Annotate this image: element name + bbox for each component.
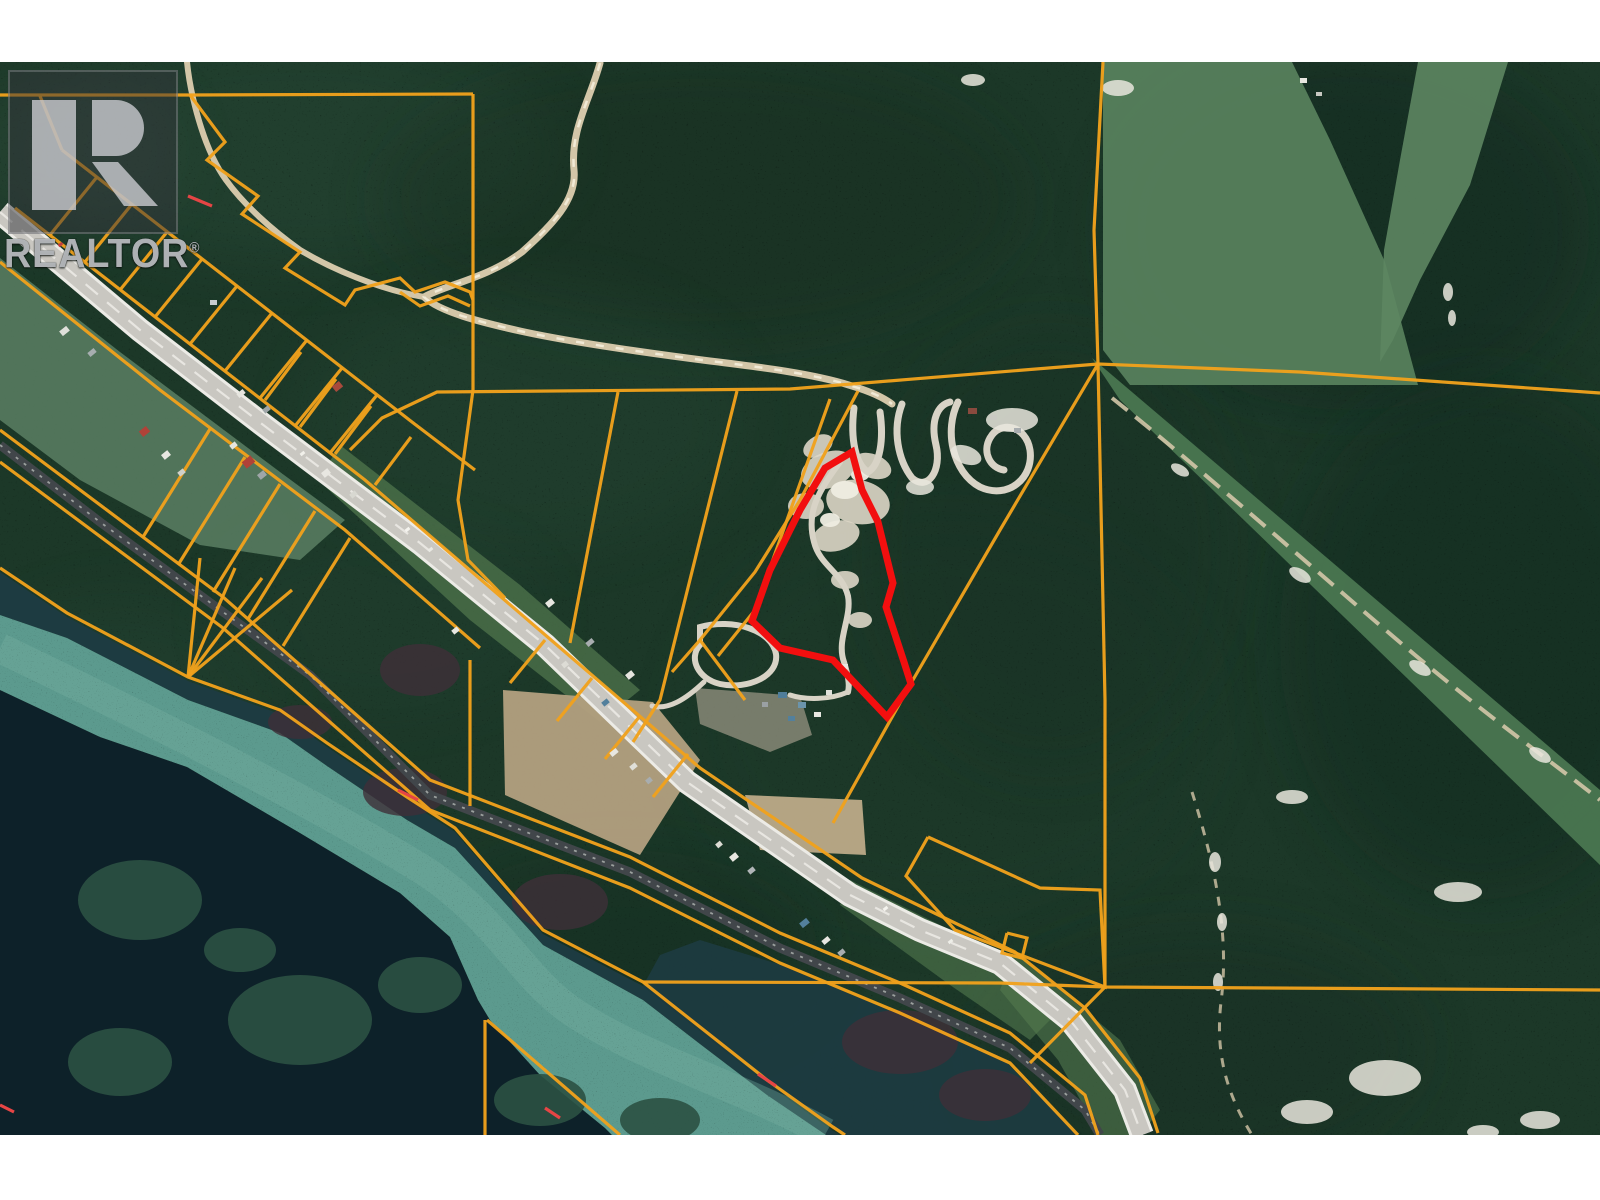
bare-ground-patch xyxy=(1520,1111,1560,1129)
building xyxy=(968,408,977,414)
marsh-island xyxy=(494,1074,586,1126)
bare-ground-patch xyxy=(1209,852,1221,872)
gravel-pit-bright xyxy=(831,481,859,499)
marsh-island xyxy=(68,1028,172,1096)
marsh-island xyxy=(228,975,372,1065)
bare-ground-patch xyxy=(1281,1100,1333,1124)
marsh-patch xyxy=(380,644,460,696)
building xyxy=(788,716,795,721)
letterbox-bottom xyxy=(0,1135,1600,1200)
gravel-pit-bright xyxy=(820,513,840,527)
marsh-patch xyxy=(512,874,608,930)
marsh-island xyxy=(378,957,462,1013)
bare-ground-patch xyxy=(961,74,985,86)
building xyxy=(1300,78,1307,83)
bare-ground-patch xyxy=(1217,913,1227,931)
building xyxy=(798,702,806,708)
building xyxy=(1316,92,1322,96)
bare-ground-patch xyxy=(1443,283,1453,301)
building xyxy=(762,702,768,707)
marsh-island xyxy=(78,860,202,940)
bare-ground-patch xyxy=(1448,310,1456,326)
building xyxy=(826,690,832,695)
satellite-map-canvas xyxy=(0,62,1600,1135)
marsh-island xyxy=(204,928,276,972)
bare-ground-patch xyxy=(1349,1060,1421,1096)
building xyxy=(1014,428,1021,433)
letterbox-top xyxy=(0,0,1600,62)
building xyxy=(210,300,217,305)
screenshot-stage: REALTOR® xyxy=(0,0,1600,1200)
parcel-boundary-line xyxy=(0,94,473,95)
bare-ground-patch xyxy=(1276,790,1308,804)
building xyxy=(990,415,997,420)
bare-ground-patch xyxy=(1102,80,1134,96)
satellite-map-viewport[interactable] xyxy=(0,62,1600,1135)
bare-ground-patch xyxy=(1434,882,1482,902)
building xyxy=(814,712,821,717)
building xyxy=(778,692,787,698)
marsh-patch xyxy=(939,1069,1031,1121)
gravel-pit xyxy=(848,612,872,628)
bare-ground-patch xyxy=(906,479,934,495)
